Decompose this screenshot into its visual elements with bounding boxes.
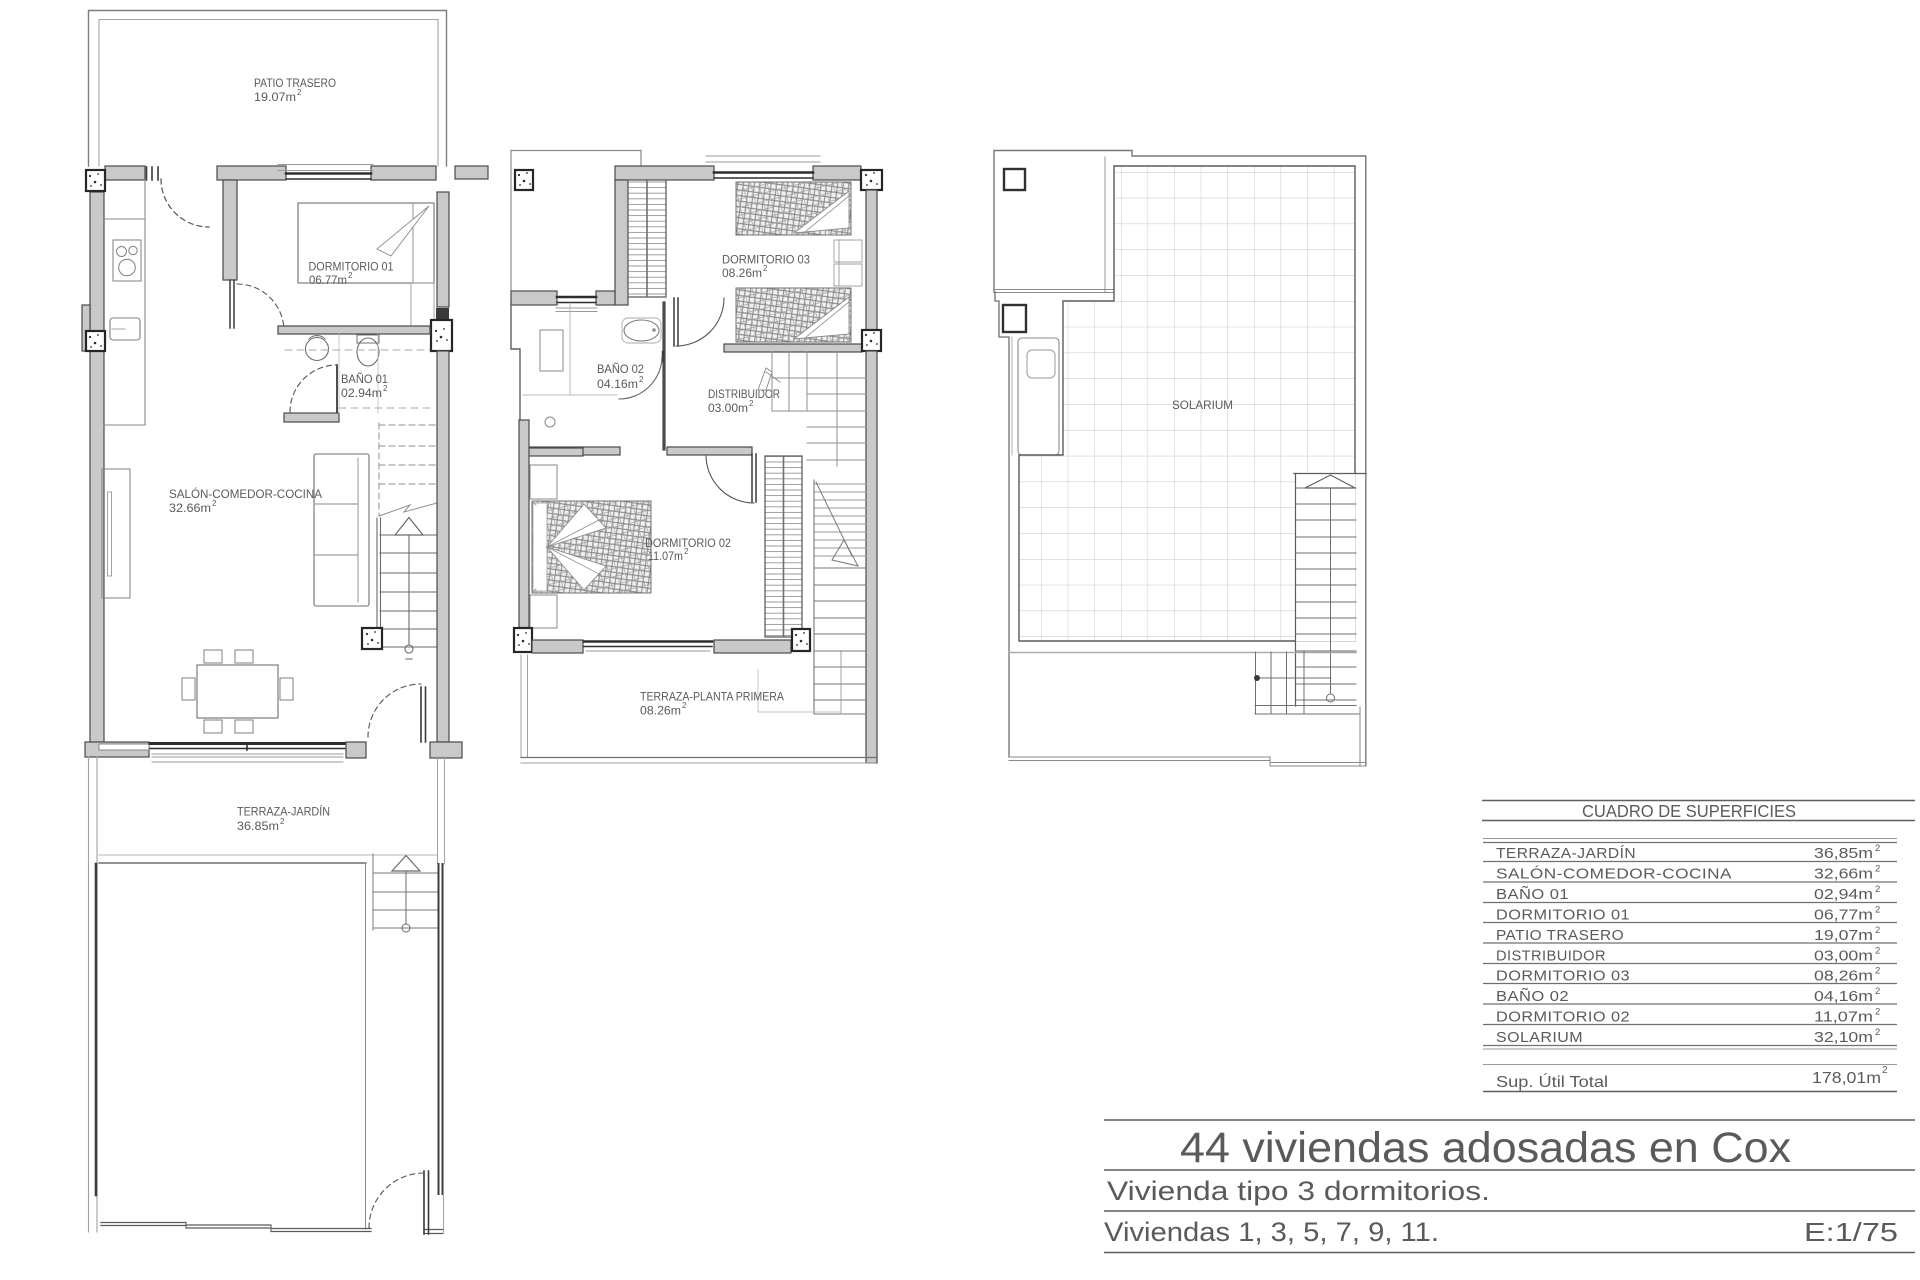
svg-text:2: 2 xyxy=(749,399,754,408)
svg-text:Viviendas 1, 3, 5, 7, 9, 11.: Viviendas 1, 3, 5, 7, 9, 11. xyxy=(1104,1217,1439,1247)
svg-text:2: 2 xyxy=(1875,843,1880,854)
svg-text:2: 2 xyxy=(763,264,768,273)
svg-text:04,16m: 04,16m xyxy=(1814,989,1873,1005)
svg-text:2: 2 xyxy=(1875,966,1880,977)
svg-text:BAÑO 01: BAÑO 01 xyxy=(341,372,388,386)
svg-text:03.00m: 03.00m xyxy=(708,401,748,415)
svg-text:SALÓN-COMEDOR-COCINA: SALÓN-COMEDOR-COCINA xyxy=(1496,866,1732,883)
svg-text:BAÑO 02: BAÑO 02 xyxy=(1496,988,1569,1005)
svg-text:BAÑO 02: BAÑO 02 xyxy=(597,362,644,376)
svg-text:06,77m: 06,77m xyxy=(1814,908,1873,924)
svg-text:DISTRIBUIDOR: DISTRIBUIDOR xyxy=(1496,949,1606,965)
svg-text:DISTRIBUIDOR: DISTRIBUIDOR xyxy=(708,387,780,401)
svg-text:32,10m: 32,10m xyxy=(1814,1030,1873,1046)
svg-text:TERRAZA-PLANTA PRIMERA: TERRAZA-PLANTA PRIMERA xyxy=(640,690,785,704)
svg-text:32,66m: 32,66m xyxy=(1814,867,1873,883)
svg-text:SOLARIUM: SOLARIUM xyxy=(1496,1030,1583,1046)
svg-text:2: 2 xyxy=(280,817,285,826)
svg-text:03,00m: 03,00m xyxy=(1814,949,1873,965)
svg-text:11,07m: 11,07m xyxy=(1814,1010,1873,1026)
svg-text:11.07m: 11.07m xyxy=(648,549,683,563)
svg-text:02.94m: 02.94m xyxy=(341,386,382,400)
svg-text:CUADRO DE SUPERFICIES: CUADRO DE SUPERFICIES xyxy=(1582,801,1796,821)
svg-text:32.66m: 32.66m xyxy=(169,501,211,515)
svg-text:PATIO TRASERO: PATIO TRASERO xyxy=(1496,928,1624,944)
svg-text:19.07m: 19.07m xyxy=(254,90,296,104)
svg-text:08.26m: 08.26m xyxy=(722,266,762,280)
svg-text:DORMITORIO 03: DORMITORIO 03 xyxy=(1496,969,1630,985)
svg-text:36,85m: 36,85m xyxy=(1814,846,1873,862)
svg-text:2: 2 xyxy=(1875,884,1880,895)
svg-text:2: 2 xyxy=(1875,864,1880,875)
svg-text:2: 2 xyxy=(1875,905,1880,916)
svg-text:PATIO TRASERO: PATIO TRASERO xyxy=(254,76,336,90)
svg-text:DORMITORIO 02: DORMITORIO 02 xyxy=(1496,1010,1630,1026)
svg-text:06.77m: 06.77m xyxy=(309,273,347,287)
svg-text:02,94m: 02,94m xyxy=(1814,887,1873,903)
svg-text:08.26m: 08.26m xyxy=(640,704,681,718)
svg-text:E:1/75: E:1/75 xyxy=(1804,1217,1898,1247)
svg-text:2: 2 xyxy=(1882,1065,1888,1076)
svg-text:2: 2 xyxy=(1875,946,1880,957)
svg-text:04.16m: 04.16m xyxy=(597,377,638,391)
svg-text:2: 2 xyxy=(684,547,689,556)
svg-text:2: 2 xyxy=(348,271,353,280)
svg-text:08,26m: 08,26m xyxy=(1814,969,1873,985)
svg-text:2: 2 xyxy=(383,384,388,393)
svg-text:Sup. Útil Total: Sup. Útil Total xyxy=(1496,1074,1608,1091)
svg-text:2: 2 xyxy=(1875,1027,1880,1038)
svg-text:2: 2 xyxy=(682,701,687,710)
svg-text:19,07m: 19,07m xyxy=(1814,928,1873,944)
svg-text:2: 2 xyxy=(212,499,217,508)
svg-text:2: 2 xyxy=(1875,925,1880,936)
svg-text:SALÓN-COMEDOR-COCINA: SALÓN-COMEDOR-COCINA xyxy=(169,486,323,501)
svg-text:2: 2 xyxy=(1875,1007,1880,1018)
svg-text:36.85m: 36.85m xyxy=(237,819,279,833)
svg-text:SOLARIUM: SOLARIUM xyxy=(1172,398,1233,412)
svg-text:178,01m: 178,01m xyxy=(1812,1070,1881,1087)
svg-text:Vivienda tipo 3 dormitorios.: Vivienda tipo 3 dormitorios. xyxy=(1107,1176,1490,1206)
svg-text:DORMITORIO 01: DORMITORIO 01 xyxy=(1496,908,1630,924)
svg-text:44 viviendas adosadas en Cox: 44 viviendas adosadas en Cox xyxy=(1180,1124,1792,1172)
svg-text:BAÑO 01: BAÑO 01 xyxy=(1496,886,1569,903)
svg-text:2: 2 xyxy=(1875,986,1880,997)
svg-text:2: 2 xyxy=(297,88,302,97)
svg-text:TERRAZA-JARDÍN: TERRAZA-JARDÍN xyxy=(1496,845,1636,862)
svg-text:2: 2 xyxy=(639,375,644,384)
